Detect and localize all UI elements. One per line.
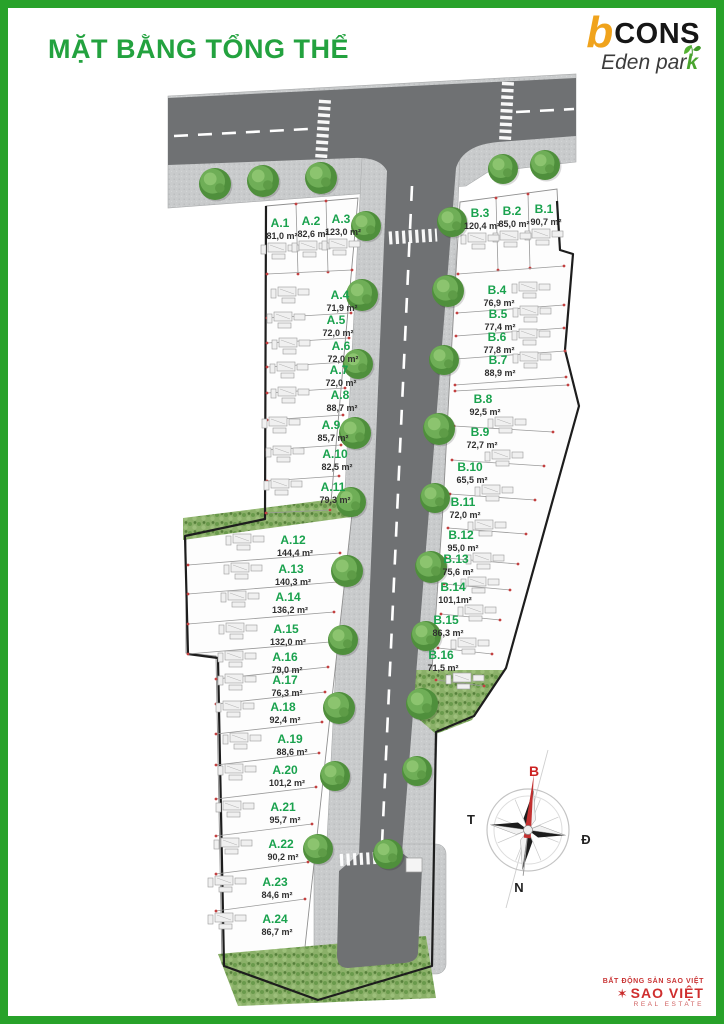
brand-subtitle-text: Eden par <box>601 51 686 74</box>
lot-area: 71,5 m² <box>427 663 458 673</box>
survey-dot <box>215 678 218 681</box>
lot-label: A.2 <box>302 214 321 228</box>
lot-label: B.6 <box>488 330 507 344</box>
lot-area: 144,4 m² <box>277 548 313 558</box>
lot-label: B.15 <box>433 613 459 627</box>
lot-label: A.5 <box>327 313 346 327</box>
survey-dot <box>456 312 459 315</box>
survey-dot <box>295 203 298 206</box>
survey-dot <box>565 376 568 379</box>
lot-label: A.9 <box>322 418 341 432</box>
lot-label: A.23 <box>262 875 288 889</box>
lot-label: A.17 <box>272 673 298 687</box>
lot-area: 72,0 m² <box>322 328 353 338</box>
lot-label: A.10 <box>322 447 348 461</box>
lot-label: A.21 <box>270 800 296 814</box>
survey-dot <box>327 666 330 669</box>
lot-area: 120,4 m² <box>464 221 500 231</box>
lot-area: 85,7 m² <box>317 433 348 443</box>
survey-dot <box>215 798 218 801</box>
survey-dot <box>517 563 520 566</box>
lot-area: 65,5 m² <box>456 475 487 485</box>
lot-label: A.13 <box>278 562 304 576</box>
survey-dot <box>563 265 566 268</box>
lot-label: A.12 <box>280 533 306 547</box>
survey-dot <box>318 752 321 755</box>
survey-dot <box>266 273 269 276</box>
lot-area: 136,2 m² <box>272 605 308 615</box>
lot-label: B.4 <box>488 283 507 297</box>
lot-label: A.14 <box>275 590 301 604</box>
survey-dot <box>563 327 566 330</box>
lot-area: 75,6 m² <box>442 567 473 577</box>
lot-label: B.8 <box>474 392 493 406</box>
survey-dot <box>543 465 546 468</box>
compass-rose: B T Đ N <box>467 750 591 908</box>
brand-b-glyph: b <box>586 16 613 49</box>
lot-area: 81,0 m² <box>266 231 297 241</box>
lot-label: B.9 <box>471 425 490 439</box>
lot-label: B.2 <box>503 204 522 218</box>
agency-subtitle: REAL ESTATE <box>603 1001 704 1008</box>
lot-area: 88,6 m² <box>276 747 307 757</box>
survey-dot <box>297 273 300 276</box>
survey-dot <box>342 414 345 417</box>
survey-dot <box>495 197 498 200</box>
lot-area: 85,0 m² <box>498 219 529 229</box>
survey-dot <box>491 653 494 656</box>
utility-pad <box>406 858 422 872</box>
page-title: MẶT BẰNG TỔNG THỂ <box>48 34 349 65</box>
lot-label: A.16 <box>272 650 298 664</box>
lot-area: 92,4 m² <box>269 715 300 725</box>
lot-label: A.3 <box>332 212 351 226</box>
survey-dot <box>215 835 218 838</box>
survey-dot <box>187 653 190 656</box>
lot-area: 86,7 m² <box>261 927 292 937</box>
survey-dot <box>215 910 218 913</box>
lot-area: 79,3 m² <box>319 495 350 505</box>
survey-dot <box>567 384 570 387</box>
survey-dot <box>329 509 332 512</box>
survey-dot <box>454 390 457 393</box>
survey-dot <box>563 304 566 307</box>
survey-dot <box>525 533 528 536</box>
survey-dot <box>499 619 502 622</box>
survey-dot <box>215 873 218 876</box>
lot-area: 90,7 m² <box>530 217 561 227</box>
agency-logo: BẤT ĐỘNG SẢN SAO VIỆT ✶ SAO VIỆT REAL ES… <box>603 978 704 1008</box>
lot-area: 95,7 m² <box>269 815 300 825</box>
lot-area: 140,3 m² <box>275 577 311 587</box>
survey-dot <box>564 350 567 353</box>
survey-dot <box>215 733 218 736</box>
lot-area: 123,0 m² <box>325 227 361 237</box>
lot-label: A.18 <box>270 700 296 714</box>
survey-dot <box>534 499 537 502</box>
survey-dot <box>454 384 457 387</box>
lot-area: 76,3 m² <box>271 688 302 698</box>
survey-dot <box>435 679 438 682</box>
compass-label-east: Đ <box>581 832 590 847</box>
survey-dot <box>333 611 336 614</box>
poster-page: { "page_title": "MẶT BẰNG TỔNG THỂ", "br… <box>0 0 724 1024</box>
survey-dot <box>457 273 460 276</box>
survey-dot <box>455 335 458 338</box>
survey-dot <box>325 200 328 203</box>
lot-label: A.8 <box>331 388 350 402</box>
survey-dot <box>527 193 530 196</box>
survey-dot <box>340 444 343 447</box>
lot-area: 84,6 m² <box>261 890 292 900</box>
lot-label: A.4 <box>331 288 350 302</box>
lot-label: A.7 <box>330 363 349 377</box>
survey-dot <box>304 898 307 901</box>
lot-area: 101,1m² <box>438 595 472 605</box>
survey-dot <box>351 269 354 272</box>
survey-dot <box>321 721 324 724</box>
survey-dot <box>266 392 269 395</box>
lot-area: 88,7 m² <box>326 403 357 413</box>
lot-area: 88,9 m² <box>484 368 515 378</box>
survey-dot <box>451 459 454 462</box>
leaf-icon <box>680 40 702 62</box>
lot-label: A.19 <box>277 732 303 746</box>
lot-area: 72,7 m² <box>466 440 497 450</box>
lot-label: A.11 <box>321 480 346 494</box>
site-plan: A.181,0 m²A.282,6 m²A.3123,0 m²A.471,9 m… <box>8 8 724 1032</box>
lot-label: B.14 <box>440 580 466 594</box>
brand-logo: bCONS Eden park <box>586 16 700 73</box>
lot-area: 101,2 m² <box>269 778 305 788</box>
lot-area: 72,0 m² <box>325 378 356 388</box>
survey-dot <box>265 512 268 515</box>
lot-label: B.10 <box>457 460 483 474</box>
survey-dot <box>215 764 218 767</box>
lot-label: A.6 <box>332 339 351 353</box>
lot-label: B.12 <box>448 528 474 542</box>
lot-label: B.5 <box>489 307 508 321</box>
lot-label: A.15 <box>273 622 299 636</box>
survey-dot <box>315 786 318 789</box>
survey-dot <box>324 691 327 694</box>
survey-dot <box>339 552 342 555</box>
survey-dot <box>311 823 314 826</box>
compass-label-south: N <box>514 880 523 895</box>
survey-dot <box>509 589 512 592</box>
lot-label: B.11 <box>451 495 476 509</box>
lot-area: 132,0 m² <box>270 637 306 647</box>
survey-dot <box>266 366 269 369</box>
compass-label-west: T <box>467 812 475 827</box>
lot-label: A.1 <box>271 216 290 230</box>
lot-area: 86,3 m² <box>432 628 463 638</box>
lot-label: B.13 <box>443 552 469 566</box>
lot-label: A.24 <box>262 912 288 926</box>
survey-dot <box>266 342 269 345</box>
lot-area: 82,6 m² <box>297 229 328 239</box>
brand-subtitle: Eden park <box>586 52 700 73</box>
crosswalk-top-2 <box>505 82 508 141</box>
lot-label: A.22 <box>268 837 294 851</box>
compass-label-north: B <box>529 763 539 779</box>
survey-dot <box>187 623 190 626</box>
agency-tagline: BẤT ĐỘNG SẢN SAO VIỆT <box>603 978 704 985</box>
lot-label: B.3 <box>471 206 490 220</box>
survey-dot <box>187 564 190 567</box>
agency-name: SAO VIỆT <box>631 986 704 1000</box>
lot-label: B.7 <box>489 353 508 367</box>
lot-area: 71,9 m² <box>326 303 357 313</box>
lot-label: B.1 <box>535 202 554 216</box>
survey-dot <box>552 431 555 434</box>
lot-area: 92,5 m² <box>469 407 500 417</box>
lot-label: B.16 <box>428 648 454 662</box>
lot-area: 72,0 m² <box>449 510 480 520</box>
lot-area: 82,5 m² <box>321 462 352 472</box>
survey-dot <box>187 593 190 596</box>
lot-area: 90,2 m² <box>267 852 298 862</box>
lot-label: A.20 <box>272 763 298 777</box>
agency-star-icon: ✶ <box>617 987 628 1000</box>
survey-dot <box>338 475 341 478</box>
survey-dot <box>483 685 486 688</box>
